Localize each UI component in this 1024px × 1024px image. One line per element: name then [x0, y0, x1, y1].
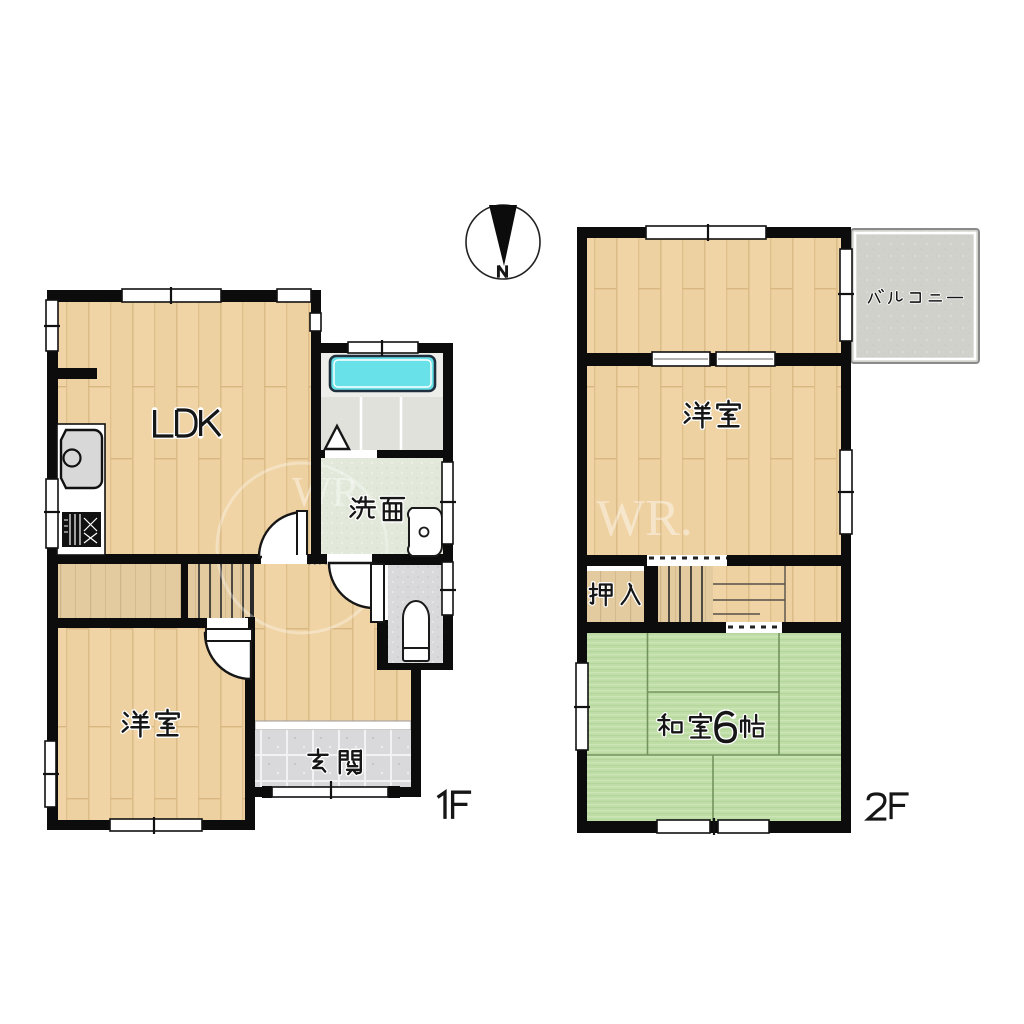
svg-text:WR.: WR.: [596, 490, 693, 547]
svg-text:WR: WR: [292, 470, 360, 516]
